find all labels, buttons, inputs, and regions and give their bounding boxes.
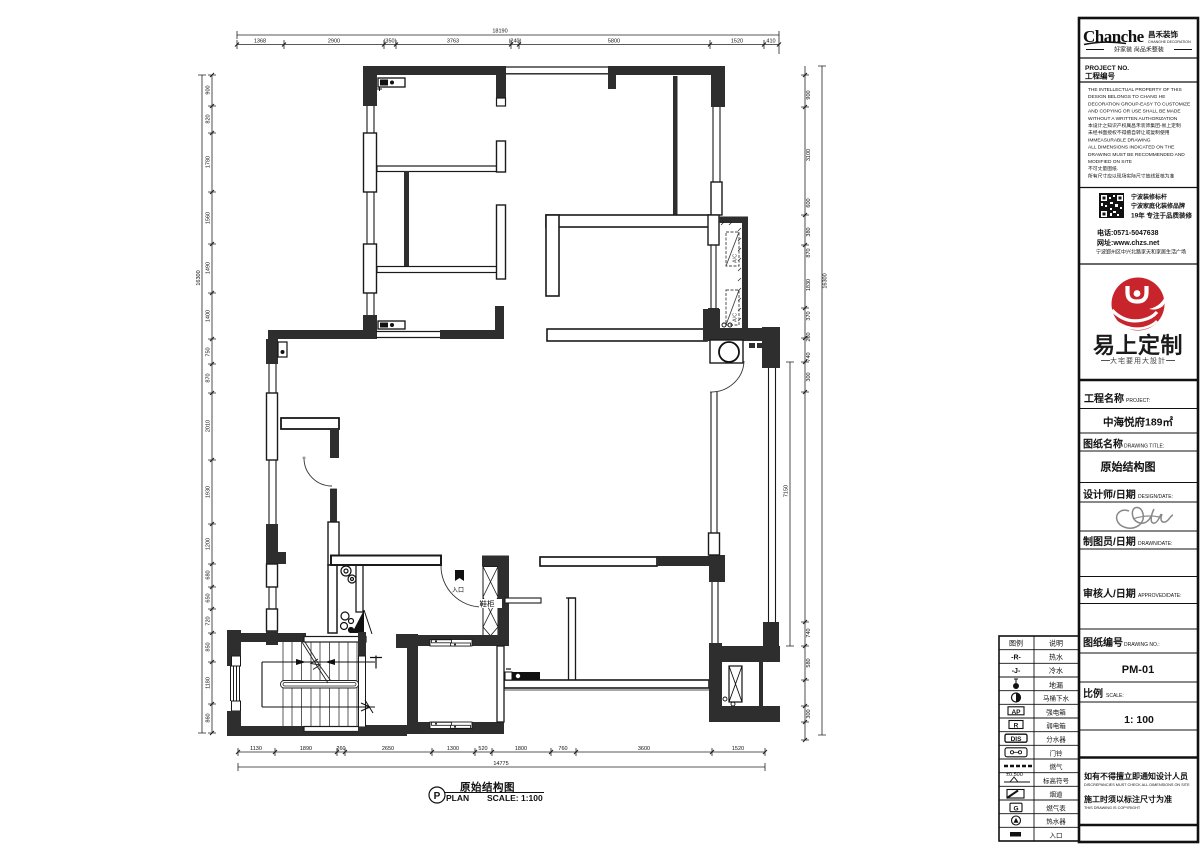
svg-text:宁波家庭化装修品牌: 宁波家庭化装修品牌 (1131, 202, 1185, 210)
svg-text:650: 650 (206, 593, 212, 602)
svg-text:1520: 1520 (731, 39, 743, 45)
svg-text:AP: AP (1011, 709, 1021, 716)
svg-text:WITHOUT A WRITTEN AUTHORIZATIO: WITHOUT A WRITTEN AUTHORIZATION (1088, 116, 1178, 122)
svg-text:MODIFIED ON SITE: MODIFIED ON SITE (1088, 159, 1132, 165)
svg-text:R: R (1014, 722, 1019, 729)
svg-text:410: 410 (766, 39, 775, 45)
svg-text:PROJECT:: PROJECT: (1126, 398, 1150, 404)
svg-text:±0.500: ±0.500 (1006, 772, 1023, 778)
svg-text:说明: 说明 (1049, 639, 1063, 648)
svg-text:5800: 5800 (608, 39, 620, 45)
svg-text:280: 280 (806, 332, 812, 341)
svg-text:900: 900 (206, 85, 212, 94)
svg-text:SCALE: 1:100: SCALE: 1:100 (487, 793, 543, 803)
svg-text:1180: 1180 (206, 677, 212, 689)
svg-text:热水: 热水 (1049, 653, 1063, 662)
svg-text:(240): (240) (509, 39, 522, 45)
svg-text:施工时须以标注尺寸为准: 施工时须以标注尺寸为准 (1084, 794, 1172, 804)
svg-text:3763: 3763 (447, 39, 459, 45)
svg-text:图例: 图例 (1009, 639, 1023, 648)
svg-text:DRAWING NO.:: DRAWING NO.: (1124, 642, 1160, 648)
svg-text:PM-01: PM-01 (1122, 664, 1154, 676)
svg-text:分水器: 分水器 (1046, 735, 1066, 744)
svg-text:300: 300 (806, 372, 812, 381)
svg-text:CHANGHE DECORATION: CHANGHE DECORATION (1148, 40, 1191, 44)
svg-text:870: 870 (806, 248, 812, 257)
svg-text:740: 740 (806, 352, 812, 361)
svg-text:18190: 18190 (492, 29, 507, 35)
svg-text:850: 850 (206, 642, 212, 651)
svg-text:1800: 1800 (515, 746, 527, 752)
svg-text:原始结构图: 原始结构图 (1101, 460, 1156, 474)
svg-text:1368: 1368 (254, 39, 266, 45)
svg-text:750: 750 (206, 347, 212, 356)
svg-text:烟道: 烟道 (1050, 790, 1064, 799)
svg-text:1400: 1400 (206, 310, 212, 322)
svg-text:审核人/日期: 审核人/日期 (1083, 587, 1136, 600)
svg-text:本设计之知识产权属昌禾装饰集团-易上定制: 本设计之知识产权属昌禾装饰集团-易上定制 (1088, 122, 1181, 129)
svg-text:2650: 2650 (382, 746, 394, 752)
svg-text:比例: 比例 (1083, 687, 1103, 700)
svg-text:3600: 3600 (638, 746, 650, 752)
svg-text:DIS: DIS (1011, 736, 1023, 743)
svg-text:制图员/日期: 制图员/日期 (1083, 535, 1136, 548)
svg-text:工程编号: 工程编号 (1085, 71, 1115, 81)
svg-text:强电箱: 强电箱 (1046, 707, 1066, 716)
svg-text:1200: 1200 (206, 538, 212, 550)
svg-text:900: 900 (806, 90, 812, 99)
svg-text:宁波装修标杆: 宁波装修标杆 (1131, 193, 1167, 201)
svg-text:-R-: -R- (1011, 655, 1021, 662)
svg-text:DRAWING MUST BE RECOMMENDED AN: DRAWING MUST BE RECOMMENDED AND (1088, 152, 1185, 158)
svg-text:7150: 7150 (784, 485, 790, 497)
svg-text:580: 580 (806, 658, 812, 667)
svg-text:地漏: 地漏 (1049, 680, 1063, 689)
svg-text:PLAN: PLAN (446, 793, 469, 803)
svg-text:14775: 14775 (493, 761, 508, 767)
svg-text:电话:0571-5047638: 电话:0571-5047638 (1097, 228, 1159, 237)
svg-text:热水器: 热水器 (1046, 817, 1066, 826)
svg-text:A/C: A/C (733, 313, 739, 322)
svg-text:300: 300 (806, 709, 812, 718)
svg-text:A/C: A/C (733, 254, 739, 263)
svg-text:入口: 入口 (1050, 831, 1063, 839)
svg-text:DECORATION GROUP-EASY TO CUSTO: DECORATION GROUP-EASY TO CUSTOMIZE (1088, 101, 1190, 107)
svg-text:原始结构图: 原始结构图 (460, 781, 515, 794)
svg-text:1560: 1560 (206, 212, 212, 224)
svg-text:370: 370 (806, 311, 812, 320)
svg-text:THIS DRAWING IS COPYRIGHT: THIS DRAWING IS COPYRIGHT (1084, 806, 1141, 810)
svg-text:16300: 16300 (196, 270, 202, 285)
svg-text:820: 820 (206, 114, 212, 123)
svg-text:1930: 1930 (206, 486, 212, 498)
svg-text:燃气表: 燃气表 (1046, 803, 1066, 812)
svg-text:弱电箱: 弱电箱 (1046, 721, 1066, 730)
svg-text:760: 760 (558, 746, 567, 752)
svg-text:1130: 1130 (250, 746, 262, 752)
svg-text:380: 380 (806, 227, 812, 236)
svg-text:DESIGN BELONGS TO CHANG HE: DESIGN BELONGS TO CHANG HE (1088, 94, 1165, 100)
svg-text:720: 720 (206, 616, 212, 625)
svg-text:1520: 1520 (732, 746, 744, 752)
svg-text:ALL DIMENSIONS INDICATED ON TH: ALL DIMENSIONS INDICATED ON THE (1088, 145, 1174, 151)
svg-text:未经书面授权不得擅自转让或复制使用: 未经书面授权不得擅自转让或复制使用 (1088, 129, 1170, 136)
svg-text:不可丈量图纸.: 不可丈量图纸. (1088, 165, 1118, 172)
svg-text:SCALE:: SCALE: (1106, 693, 1124, 699)
svg-text:工程名称: 工程名称 (1084, 392, 1124, 405)
svg-text:宁波鄞州区中兴北路家天和家居生活广场: 宁波鄞州区中兴北路家天和家居生活广场 (1096, 249, 1186, 256)
svg-text:3100: 3100 (806, 149, 812, 161)
svg-text:DRAWING TITLE:: DRAWING TITLE: (1124, 444, 1164, 450)
svg-text:DRAWN/DATE:: DRAWN/DATE: (1138, 541, 1172, 547)
svg-text:图纸名称: 图纸名称 (1083, 438, 1123, 451)
svg-text:1890: 1890 (300, 746, 312, 752)
svg-text:2900: 2900 (328, 39, 340, 45)
svg-text:DISCREPANCIES MUST CHECK ALL D: DISCREPANCIES MUST CHECK ALL DIMENSIONS … (1084, 783, 1190, 787)
svg-text:设计师/日期: 设计师/日期 (1083, 488, 1136, 501)
svg-text:-J-: -J- (1012, 668, 1021, 675)
svg-text:燃气: 燃气 (1050, 762, 1064, 771)
svg-text:DESIGN/DATE:: DESIGN/DATE: (1138, 494, 1173, 500)
svg-text:易上定制: 易上定制 (1093, 333, 1183, 358)
svg-text:门铃: 门铃 (1050, 748, 1064, 757)
svg-text:大宅要用大設計: 大宅要用大設計 (1110, 356, 1166, 365)
svg-text:入口: 入口 (452, 587, 464, 594)
svg-text:网址:www.chzs.net: 网址:www.chzs.net (1097, 238, 1160, 247)
svg-text:好家装 尚品禾整装: 好家装 尚品禾整装 (1114, 46, 1164, 54)
svg-text:260: 260 (336, 746, 345, 752)
svg-text:G: G (1013, 805, 1018, 812)
svg-text:1780: 1780 (206, 156, 212, 168)
svg-text:标高符号: 标高符号 (1043, 776, 1070, 785)
svg-text:所有尺寸应以现场实际尺寸放线复核为准: 所有尺寸应以现场实际尺寸放线复核为准 (1088, 172, 1175, 179)
svg-text:870: 870 (206, 373, 212, 382)
svg-text:中海悦府189㎡: 中海悦府189㎡ (1103, 416, 1174, 429)
svg-text:冷水: 冷水 (1049, 666, 1063, 675)
svg-text:680: 680 (206, 570, 212, 579)
svg-text:860: 860 (206, 713, 212, 722)
svg-text:IMMEASURABLE DRAWING: IMMEASURABLE DRAWING (1088, 137, 1151, 143)
svg-text:(350): (350) (384, 39, 397, 45)
svg-text:THE INTELLECTUAL PROPERTY OF T: THE INTELLECTUAL PROPERTY OF THIS (1088, 87, 1182, 93)
svg-text:740: 740 (806, 628, 812, 637)
svg-text:600: 600 (806, 198, 812, 207)
svg-text:AND COPYING OR USE SHALL BE MA: AND COPYING OR USE SHALL BE MADE (1088, 109, 1181, 115)
svg-text:图纸编号: 图纸编号 (1083, 636, 1123, 649)
svg-text:1490: 1490 (206, 262, 212, 274)
svg-text:1300: 1300 (447, 746, 459, 752)
svg-text:马桶下水: 马桶下水 (1043, 694, 1070, 703)
svg-text:APPROVED/DATE:: APPROVED/DATE: (1138, 593, 1182, 599)
svg-text:1830: 1830 (806, 279, 812, 291)
svg-text:19年 专注于品质装修: 19年 专注于品质装修 (1131, 211, 1193, 220)
svg-text:520: 520 (478, 746, 487, 752)
svg-text:16300: 16300 (823, 273, 829, 288)
svg-text:昌禾装饰: 昌禾装饰 (1148, 29, 1178, 39)
svg-text:鞋柜: 鞋柜 (480, 599, 495, 609)
svg-text:2010: 2010 (206, 420, 212, 432)
svg-text:1: 100: 1: 100 (1124, 714, 1154, 726)
svg-text:P: P (434, 791, 441, 802)
svg-text:如有不得擅立即通知设计人员: 如有不得擅立即通知设计人员 (1084, 771, 1188, 781)
